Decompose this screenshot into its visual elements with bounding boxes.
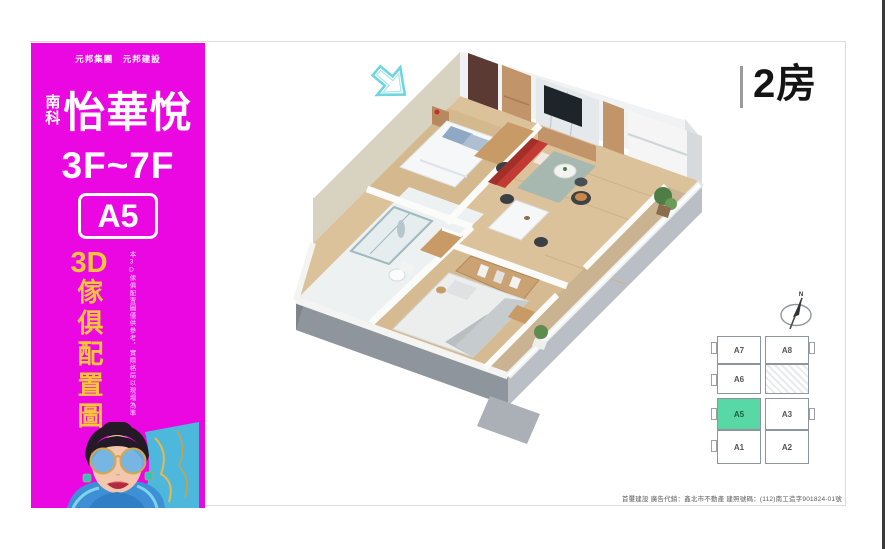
- vertical-title-prefix: 3D: [61, 249, 117, 278]
- keyplan-unit-a5-highlighted: A5: [717, 398, 761, 430]
- floorplan-3d-illustration: [205, 46, 715, 471]
- compass-icon: N: [773, 289, 819, 331]
- keyplan-balcony-stub: [809, 408, 815, 420]
- compass-north-label: N: [799, 292, 803, 298]
- keyplan-unit-a2: A2: [765, 430, 809, 464]
- keyplan-unit-a7: A7: [717, 336, 761, 364]
- model-portrait-illustration: [37, 422, 199, 508]
- room-type-divider: [740, 66, 743, 108]
- keyplan-unit-a6: A6: [717, 364, 761, 394]
- keyplan-unit-a3: A3: [765, 398, 809, 430]
- keyplan-unit-label: A3: [782, 410, 792, 419]
- vertical-title-rest: 傢俱配置圖: [76, 278, 102, 433]
- vertical-note: 本3D傢俱配置圖僅供參考，實際格局以現場為準: [126, 251, 136, 421]
- brand-name: 怡華悅: [63, 79, 192, 140]
- room-type-label: 2房: [740, 62, 817, 108]
- sidebar: 元邦集團 元邦建設 南科 怡華悅 3F~7F A5 3D 傢俱配置圖 本3D傢俱…: [31, 43, 205, 508]
- keyplan-unit-label: A7: [734, 346, 744, 355]
- brand-title: 南科 怡華悅: [31, 79, 205, 140]
- screenshot-right-edge: [882, 0, 885, 549]
- keyplan-unit-label: A5: [734, 410, 744, 419]
- keyplan-unit-label: A6: [734, 375, 744, 384]
- unit-badge: A5: [78, 193, 158, 239]
- floors-label: 3F~7F: [31, 145, 205, 187]
- keyplan-unit-label: A2: [782, 443, 792, 452]
- disclaimer-line: 首璽建設 廣告代銷：鑫北市不動產 建照號碼：(112)南工造字901824-01…: [520, 493, 842, 503]
- flyer-canvas: 元邦集團 元邦建設 南科 怡華悅 3F~7F A5 3D 傢俱配置圖 本3D傢俱…: [0, 0, 889, 549]
- keyplan-unit-a8: A8: [765, 336, 809, 364]
- vertical-title: 3D 傢俱配置圖: [61, 249, 117, 438]
- keyplan-unit-a1: A1: [717, 430, 761, 464]
- room-type-text: 2房: [753, 62, 817, 106]
- keyplan-core: [765, 364, 809, 394]
- keyplan-unit-label: A8: [782, 346, 792, 355]
- keyplan-unit-label: A1: [734, 443, 744, 452]
- keyplan-balcony-stub: [809, 342, 815, 354]
- keyplan: A7 A6 A5 A1 A8 A3 A2: [703, 330, 853, 480]
- corp-line: 元邦集團 元邦建設: [31, 53, 205, 65]
- brand-prefix: 南科: [44, 94, 60, 126]
